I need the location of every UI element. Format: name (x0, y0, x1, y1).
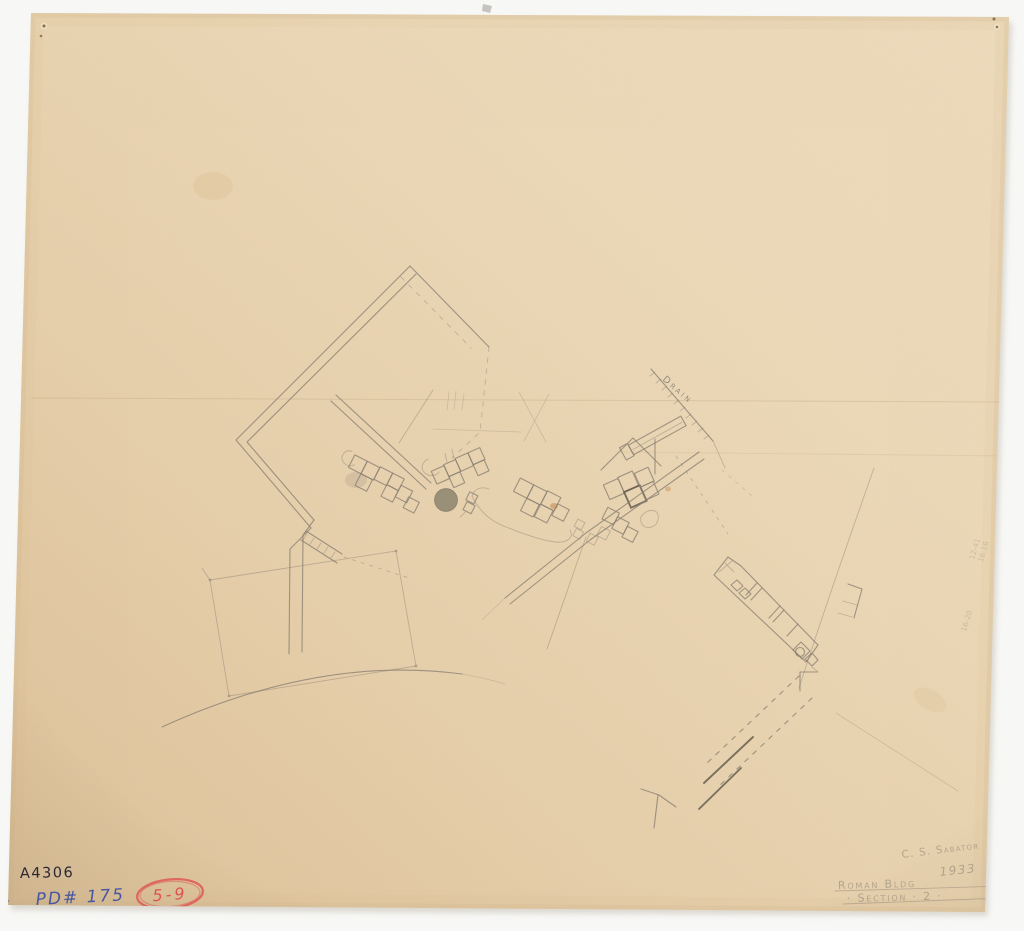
plan-scan-canvas: Drain A4306 PD# 175 5-9 C. S. Sabator 19… (0, 0, 1024, 931)
red-label-text: 5-9 (152, 884, 188, 905)
paper-surface: Drain A4306 PD# 175 5-9 C. S. Sabator 19… (0, 0, 1024, 931)
top-edge-tear (482, 4, 492, 13)
scanned-drawing-sheet: Drain A4306 PD# 175 5-9 C. S. Sabator 19… (0, 0, 1024, 931)
catalog-number: A4306 (20, 865, 75, 882)
title-line-2: · Section · 2 · (847, 890, 943, 905)
